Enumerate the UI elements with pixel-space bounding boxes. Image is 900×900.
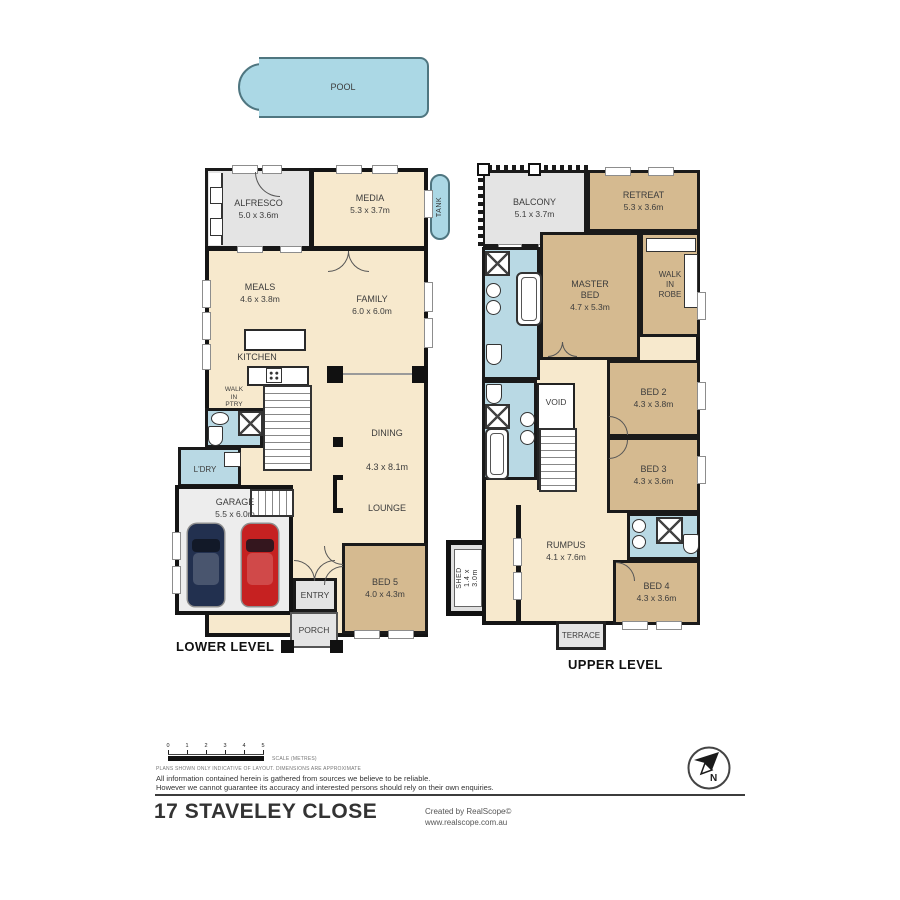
dining-dims: 4.3 x 8.1m <box>356 462 418 473</box>
credit-line2: www.realscope.com.au <box>425 818 507 828</box>
terrace-label: TERRACE <box>562 630 600 641</box>
car-windshield <box>192 539 220 552</box>
cased-opening-family-dining <box>343 373 412 375</box>
credit-line1: Created by RealScope© <box>425 807 511 817</box>
pool: POOL <box>259 57 429 118</box>
lower-level-label: LOWER LEVEL <box>176 639 274 654</box>
powder-toilet-icon <box>208 426 223 446</box>
window-rumpus-2 <box>513 572 522 600</box>
porch-label: PORCH <box>299 625 330 636</box>
powder-shower-icon <box>238 411 263 436</box>
scale-baseline <box>168 754 264 755</box>
family-label: FAMILY6.0 x 6.0m <box>337 294 407 317</box>
window-upper-right-1 <box>697 292 706 320</box>
media-label: MEDIA5.3 x 3.7m <box>338 193 402 216</box>
window-bed5-1 <box>354 630 380 639</box>
alfresco-label: ALFRESCO5.0 x 3.6m <box>234 198 283 221</box>
water-tank: TANK <box>430 174 450 240</box>
sink-icon <box>210 218 223 236</box>
window-alfresco-bottom <box>237 246 263 253</box>
porch-post-left <box>281 640 294 653</box>
bath-basin-2 <box>520 430 535 445</box>
shed-label: SHED 1.4 x 3.0m <box>456 561 480 595</box>
room-master-bed: MASTER BED4.7 x 5.3m <box>540 232 640 360</box>
balcony-post-mid <box>528 163 541 176</box>
retreat-label: RETREAT5.3 x 3.6m <box>623 190 664 213</box>
ensuite-basin-2 <box>486 300 501 315</box>
stove-icon <box>266 368 282 383</box>
scale-tick-4: 4 <box>239 743 249 749</box>
bath-tub-icon <box>485 428 509 480</box>
kitchen-label: KITCHEN <box>228 352 286 363</box>
scale-tick-5: 5 <box>258 743 268 749</box>
pillar-dining <box>333 437 343 447</box>
window-upper-right-3 <box>697 456 706 484</box>
car-windshield <box>246 539 274 552</box>
bath-basin-1 <box>520 412 535 427</box>
bed-bath-shower-icon <box>656 517 683 544</box>
master-bed-label: MASTER BED4.7 x 5.3m <box>570 279 610 313</box>
window-upper-right-2 <box>697 382 706 410</box>
scale-tick-2: 2 <box>201 743 211 749</box>
disclaimer-line1: All information contained herein is gath… <box>156 774 430 783</box>
lounge-half-wall <box>333 475 343 513</box>
car-red <box>242 524 278 606</box>
window-left-1 <box>202 280 211 308</box>
window-garage-1 <box>172 532 181 560</box>
window-retreat-2 <box>648 167 674 176</box>
bath-toilet-icon <box>486 384 502 404</box>
entry-label: ENTRY <box>301 590 330 601</box>
window-right-family-2 <box>424 318 433 348</box>
window-bed5-2 <box>388 630 414 639</box>
ensuite-bath-icon <box>516 272 542 326</box>
tank-label: TANK <box>436 197 444 217</box>
bed4-label: BED 44.3 x 3.6m <box>637 581 677 604</box>
car-roof <box>193 553 219 585</box>
room-bed5: BED 54.0 x 4.3m <box>342 543 428 634</box>
car-navy <box>188 524 224 606</box>
balcony-post-left <box>477 163 490 176</box>
wall-alfresco-media <box>309 168 314 250</box>
scale-tick-3: 3 <box>220 743 230 749</box>
window-alfresco-bottom-2 <box>280 246 302 253</box>
ensuite-basin-1 <box>486 283 501 298</box>
floorplan-page: POOL TANK ALFRESCO5.0 x 3.6m MEDIA5.3 x … <box>0 0 900 900</box>
window-top-4 <box>372 165 398 174</box>
pillar-family-left <box>327 366 343 383</box>
meals-label: MEALS4.6 x 3.8m <box>225 282 295 305</box>
room-terrace: TERRACE <box>556 621 606 650</box>
balcony-railing-left <box>478 170 483 247</box>
powder-basin-icon <box>211 412 229 425</box>
window-rumpus-1 <box>513 538 522 566</box>
window-right-family-1 <box>424 282 433 312</box>
window-right-media <box>424 190 433 218</box>
pool-label: POOL <box>330 82 355 93</box>
bed-bath-basin-2 <box>632 535 646 549</box>
window-left-2 <box>202 312 211 340</box>
window-bed4-2 <box>656 621 682 630</box>
fine-print: PLANS SHOWN ONLY INDICATIVE OF LAYOUT. D… <box>156 766 361 772</box>
scale-units-label: SCALE (METRES) <box>272 756 317 762</box>
rumpus-label: RUMPUS4.1 x 7.6m <box>528 540 604 563</box>
porch-post-right <box>330 640 343 653</box>
pillar-family-right <box>412 366 428 383</box>
bed-bath-toilet-icon <box>683 534 699 554</box>
scale-tick-0: 0 <box>163 743 173 749</box>
robe-shelf-top <box>646 238 696 252</box>
bed3-label: BED 34.3 x 3.6m <box>634 464 674 487</box>
window-garage-2 <box>172 566 181 594</box>
room-retreat: RETREAT5.3 x 3.6m <box>587 170 700 232</box>
bed2-label: BED 24.3 x 3.8m <box>634 387 674 410</box>
disclaimer-line2: However we cannot guarantee its accuracy… <box>156 783 494 792</box>
walk-in-ptry-label: WALK IN PTRY <box>212 386 256 409</box>
bed5-label: BED 54.0 x 4.3m <box>365 577 405 600</box>
footer-divider <box>155 794 745 796</box>
bed-bath-basin-1 <box>632 519 646 533</box>
upper-level-label: UPPER LEVEL <box>568 657 663 672</box>
north-compass-icon: N <box>684 743 734 793</box>
kitchen-island <box>244 329 306 351</box>
bath-shower-icon <box>485 404 510 429</box>
window-retreat-1 <box>605 167 631 176</box>
address-title: 17 STAVELEY CLOSE <box>154 800 377 824</box>
north-letter: N <box>710 773 717 784</box>
robe-shelf-right <box>684 254 698 308</box>
balcony-label: BALCONY5.1 x 3.7m <box>513 197 556 220</box>
lounge-label: LOUNGE <box>356 503 418 514</box>
stairs-lower <box>263 385 312 471</box>
fridge-icon <box>210 187 223 204</box>
ensuite-toilet-icon <box>486 344 502 365</box>
stairs-upper <box>539 428 577 492</box>
garage-label: GARAGE5.5 x 6.0m <box>199 497 271 520</box>
window-bed4-1 <box>622 621 648 630</box>
scale-bar <box>168 756 264 761</box>
window-top-3 <box>336 165 362 174</box>
car-roof <box>247 553 273 585</box>
window-left-3 <box>202 344 211 370</box>
walk-in-robe-label: WALK IN ROBE <box>659 270 682 300</box>
laundry-label: L'DRY <box>183 464 227 475</box>
dining-label: DINING <box>358 428 416 439</box>
ensuite-shower-icon <box>485 251 510 276</box>
scale-tick-1: 1 <box>182 743 192 749</box>
void-label: VOID <box>539 397 573 407</box>
